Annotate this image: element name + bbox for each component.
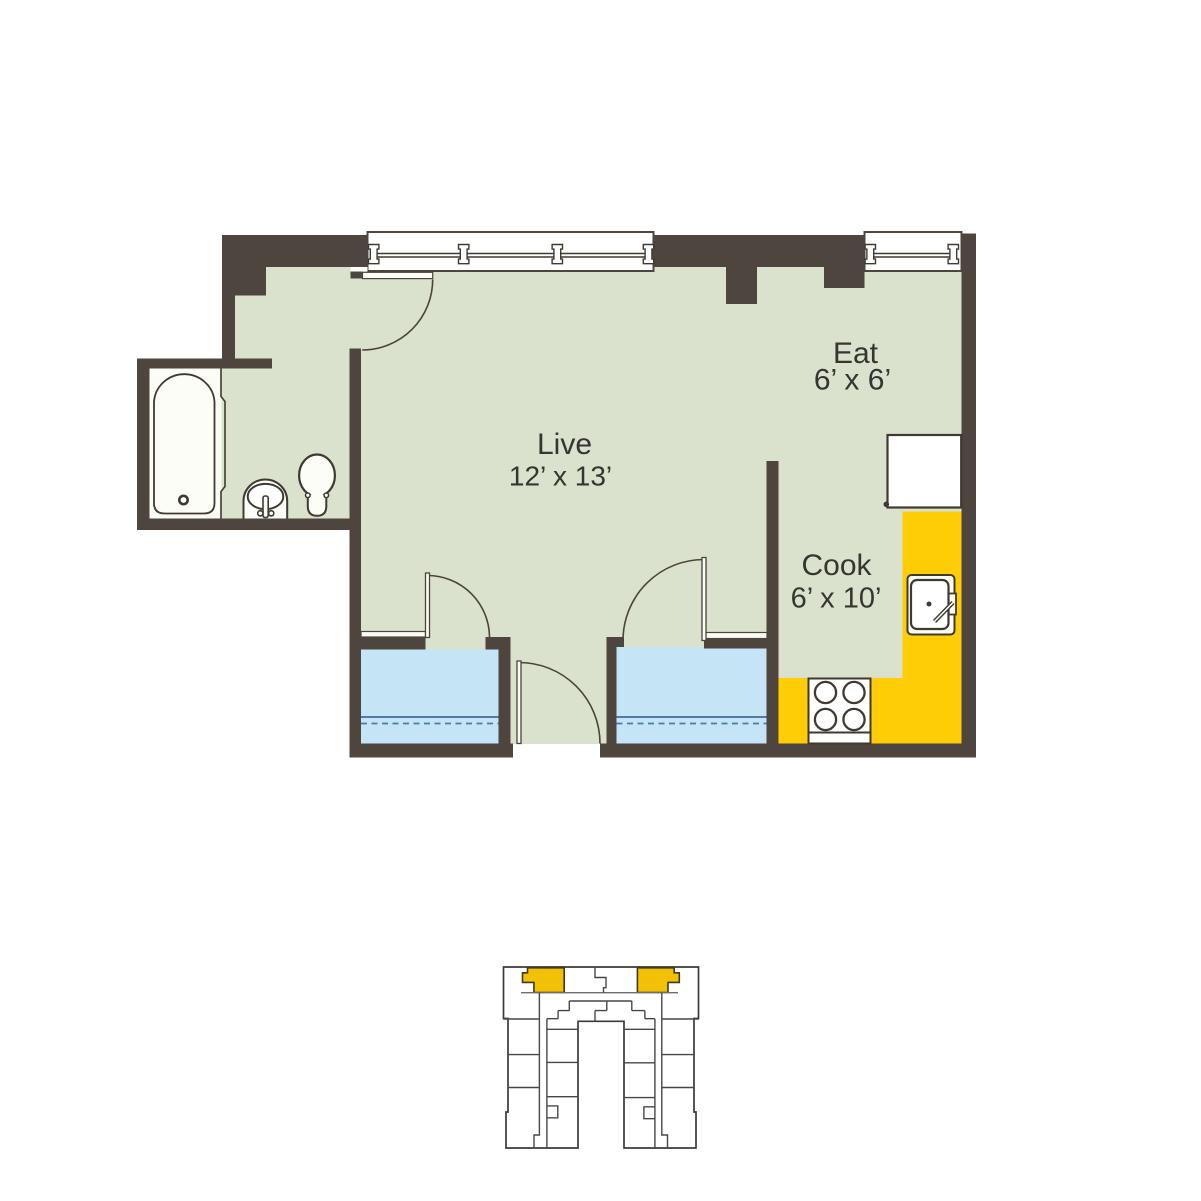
- svg-text:Cook: Cook: [801, 549, 872, 582]
- svg-text:Live: Live: [537, 428, 592, 461]
- svg-text:6’ x 10’: 6’ x 10’: [791, 583, 882, 615]
- svg-text:12’ x 13’: 12’ x 13’: [509, 461, 612, 492]
- svg-text:6’ x 6’: 6’ x 6’: [814, 364, 891, 397]
